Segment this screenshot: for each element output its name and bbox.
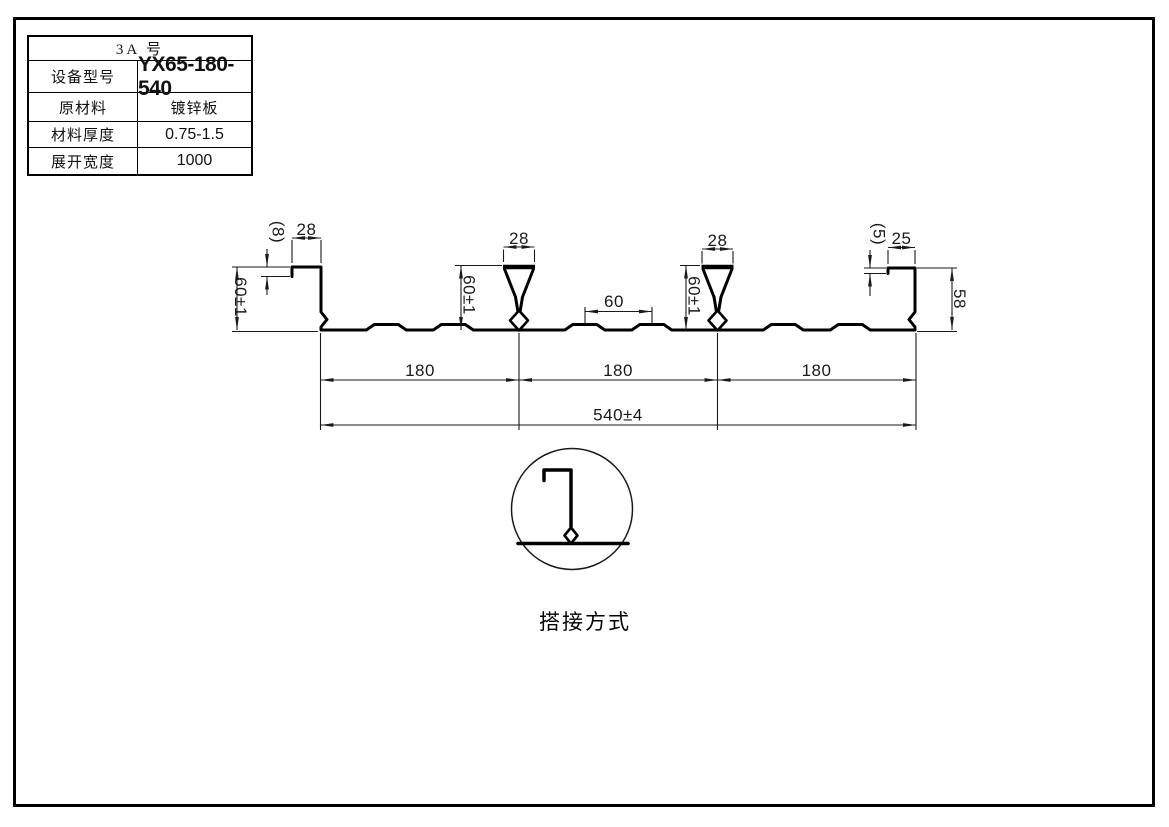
dim-right-lip-drop: (5) [864,223,889,296]
dim-label-pitch-1: 180 [405,361,435,380]
dim-left-lip-width: 28 [292,220,321,263]
dim-label-pitch-3: 180 [802,361,832,380]
dim-rib2-height: 60±1 [680,266,704,331]
detail-seam-diamond [565,528,578,544]
detail-hook-profile [544,470,571,527]
dim-label-left-lip-drop: (8) [269,221,288,243]
lap-joint-detail: 搭接方式 [512,449,633,635]
dim-label-rib2-top-width: 28 [708,231,728,250]
dim-right-lip-width: 25 [888,229,915,264]
profile-drawing: (8) 28 60±1 28 60±1 60 28 [0,0,1169,827]
dim-right-edge-height: 58 [917,268,969,332]
dim-rib1-height: 60±1 [455,266,502,331]
dim-rib1-top-width: 28 [504,229,535,262]
dim-label-right-lip-width: 25 [892,229,912,248]
dim-label-right-edge-height: 58 [950,289,969,309]
dim-label-pitch-2: 180 [603,361,633,380]
dim-overall-width: 540±4 [321,406,917,426]
dovetail-rib-1 [503,267,535,331]
dim-label-rib1-top-width: 28 [509,229,529,248]
dim-label-right-lip-drop: (5) [870,223,889,245]
dim-rib2-top-width: 28 [702,231,733,264]
dim-label-overall-width: 540±4 [593,406,643,425]
dim-label-left-edge-height: 60±1 [231,277,250,317]
dim-label-groove-gap: 60 [604,292,624,311]
lap-joint-label: 搭接方式 [539,610,631,634]
dim-label-rib1-height: 60±1 [460,275,479,315]
dim-label-rib2-height: 60±1 [685,276,704,316]
dim-groove-gap: 60 [585,292,652,323]
dim-label-left-lip-width: 28 [297,220,317,239]
dovetail-rib-2 [702,267,734,331]
